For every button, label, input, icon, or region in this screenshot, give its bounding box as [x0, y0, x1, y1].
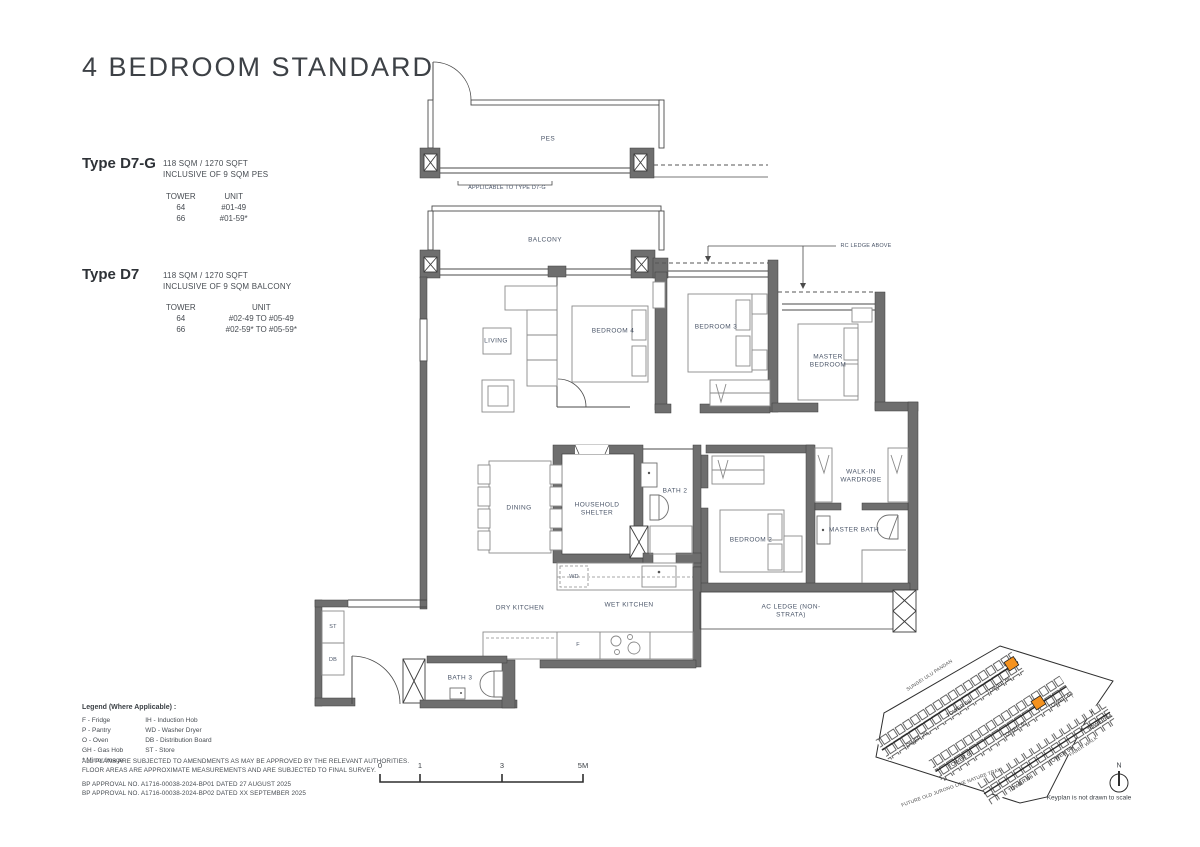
- master-bedroom-furniture: [798, 308, 872, 400]
- type-name-label: Type D7: [82, 266, 139, 283]
- legend-item: DB - Distribution Board: [145, 736, 211, 746]
- page-title: 4 BEDROOM STANDARD: [82, 52, 434, 83]
- keyplan-cluster-north: [875, 651, 1025, 761]
- column-hatch-pes-left: [424, 154, 437, 171]
- unit-cell: #02-49 TO #05-49: [202, 314, 303, 325]
- walls: [420, 260, 918, 609]
- legend-item: F - Fridge: [82, 716, 123, 726]
- household-shelter: [553, 445, 648, 563]
- type-d7-name: Type D7: [82, 266, 139, 284]
- table-row: 64 #01-49: [160, 203, 254, 214]
- approvals: BP APPROVAL NO. A1716-00038-2024-BP01 DA…: [82, 780, 306, 799]
- scale-tick-label: 0: [378, 761, 382, 770]
- type-d7g-name: Type D7-G: [82, 155, 156, 173]
- table-row: 66 #01-59*: [160, 214, 254, 225]
- pes-block: [420, 62, 768, 185]
- type-inclusive: INCLUSIVE OF 9 SQM BALCONY: [163, 281, 291, 292]
- shaft-hatch-entry: [403, 659, 425, 703]
- legend-item: WD - Washer Dryer: [145, 726, 211, 736]
- legend-item: ST - Store: [145, 746, 211, 756]
- unit-header: UNIT: [202, 192, 254, 203]
- tower-cell: 64: [160, 314, 202, 325]
- disclaimer-line: FLOOR AREAS ARE APPROXIMATE MEASUREMENTS…: [82, 766, 409, 775]
- approval-line: BP APPROVAL NO. A1716-00038-2024-BP02 DA…: [82, 789, 306, 798]
- scale-tick-label: 1: [418, 761, 422, 770]
- unit-cell: #01-49: [202, 203, 254, 214]
- unit-cell: #01-59*: [202, 214, 254, 225]
- keyplan-note: Keyplan is not drawn to scale: [1047, 795, 1132, 802]
- north-label: N: [1116, 763, 1121, 770]
- shaft-hatch-ac: [893, 590, 916, 632]
- legend-item: IH - Induction Hob: [145, 716, 211, 726]
- north-arrow: [1110, 771, 1128, 792]
- type-area: 118 SQM / 1270 SQFT: [163, 270, 291, 281]
- scale-tick-label: 5M: [578, 761, 588, 770]
- tower-header: TOWER: [160, 192, 202, 203]
- floorplan-sheet: { "page": { "title": "4 BEDROOM STANDARD…: [0, 0, 1200, 847]
- living-furniture: [482, 286, 557, 412]
- column-hatch-balcony-right: [635, 257, 648, 272]
- table-row: 64 #02-49 TO #05-49: [160, 314, 303, 325]
- legend-item: GH - Gas Hob: [82, 746, 123, 756]
- legend-title: Legend (Where Applicable) :: [82, 704, 212, 711]
- dining-furniture: [478, 461, 562, 553]
- unit-cell: #02-59* TO #05-59*: [202, 325, 303, 336]
- type-d7-meta: 118 SQM / 1270 SQFT INCLUSIVE OF 9 SQM B…: [163, 270, 291, 292]
- approval-line: BP APPROVAL NO. A1716-00038-2024-BP01 DA…: [82, 780, 306, 789]
- type-area: 118 SQM / 1270 SQFT: [163, 158, 268, 169]
- column-hatch-pes-right: [634, 154, 647, 171]
- bath2: [641, 445, 701, 567]
- master-bath: [817, 515, 906, 583]
- column-hatch-balcony-left: [424, 257, 437, 272]
- walk-in-wardrobe: [815, 448, 908, 502]
- scale-tick-label: 3: [500, 761, 504, 770]
- type-inclusive: INCLUSIVE OF 9 SQM PES: [163, 169, 268, 180]
- balcony-block: [420, 206, 664, 278]
- bedroom3-furniture: [688, 294, 770, 406]
- bedroom2-furniture: [712, 456, 802, 572]
- tower-cell: 64: [160, 203, 202, 214]
- unit-header: UNIT: [202, 303, 303, 314]
- type-d7g-unit-table: TOWER UNIT 64 #01-49 66 #01-59*: [160, 192, 254, 225]
- disclaimer-line: ALL PLANS ARE SUBJECTED TO AMENDMENTS AS…: [82, 757, 409, 766]
- disclaimer: ALL PLANS ARE SUBJECTED TO AMENDMENTS AS…: [82, 757, 409, 776]
- tower-header: TOWER: [160, 303, 202, 314]
- legend-item: P - Pantry: [82, 726, 123, 736]
- entry-area: [315, 600, 517, 708]
- table-row: 66 #02-59* TO #05-59*: [160, 325, 303, 336]
- tower-cell: 66: [160, 214, 202, 225]
- tower-cell: 66: [160, 325, 202, 336]
- scale-bar: [380, 774, 583, 782]
- type-name-label: Type D7-G: [82, 155, 156, 172]
- bedroom4-furniture: [572, 282, 665, 382]
- legend-item: O - Oven: [82, 736, 123, 746]
- ac-ledge: [700, 590, 916, 632]
- type-d7g-meta: 118 SQM / 1270 SQFT INCLUSIVE OF 9 SQM P…: [163, 158, 268, 180]
- wet-kitchen: [483, 563, 701, 668]
- keyplan: [875, 646, 1128, 805]
- type-d7-unit-table: TOWER UNIT 64 #02-49 TO #05-49 66 #02-59…: [160, 303, 303, 336]
